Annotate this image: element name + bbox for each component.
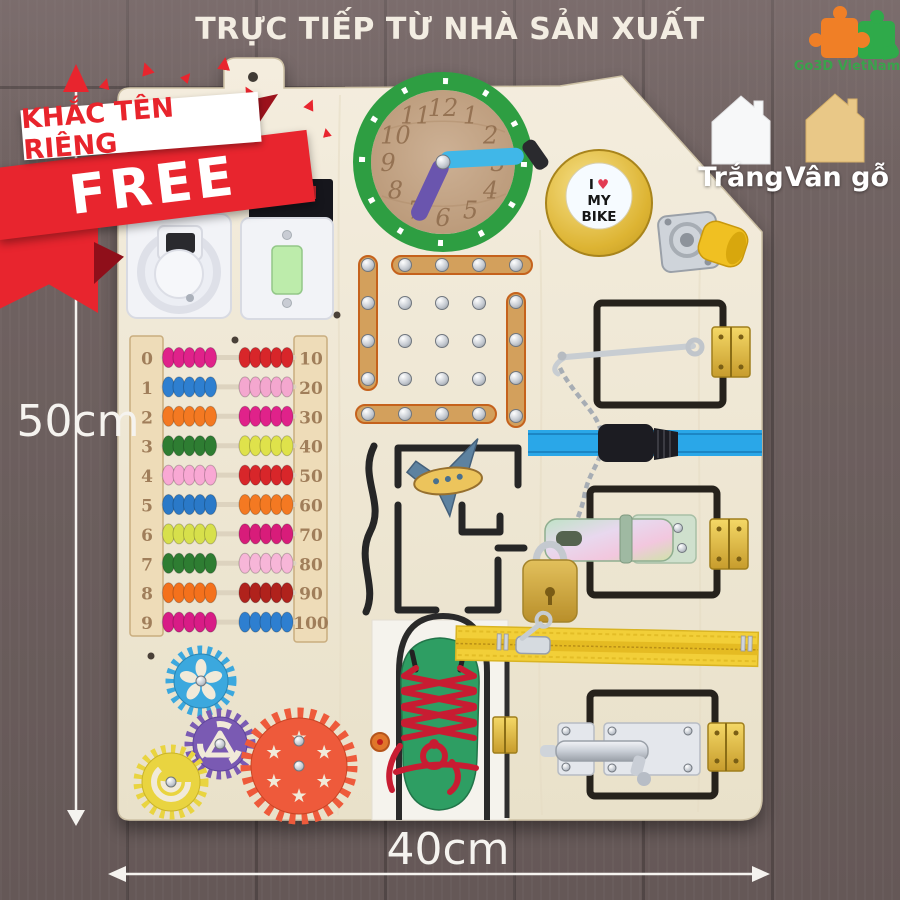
dimmer-knob[interactable] [155, 250, 203, 298]
swatch-houses [712, 94, 864, 164]
page-title: TRỰC TIẾP TỪ NHÀ SẢN XUẤT [0, 12, 900, 47]
abacus-bead [205, 553, 217, 573]
abacus-right-label: 100 [293, 614, 329, 634]
star-cutout: ★ [290, 785, 307, 807]
abacus-bead-group[interactable] [163, 553, 217, 573]
logo-text: Go3D VietNam [791, 59, 900, 74]
product-photo: 121234567891011 I♥ MY BIKE [0, 0, 900, 900]
abacus-bead [281, 612, 293, 632]
height-arrow-bottom [67, 810, 85, 826]
geoboard-pin [473, 335, 486, 348]
abacus-bead [281, 348, 293, 368]
geoboard-pin [510, 334, 523, 347]
abacus-left-label: 4 [141, 467, 153, 487]
abacus-left-label: 6 [141, 526, 153, 546]
height-arrow-top [63, 64, 89, 92]
abacus-right-label: 20 [299, 379, 323, 399]
abacus-bead-group[interactable] [163, 377, 217, 397]
geoboard-pin [473, 373, 486, 386]
swatch-label-wood: Vân gỗ [782, 162, 892, 193]
geoboard-pin [436, 259, 449, 272]
abacus-bead-group[interactable] [239, 612, 293, 632]
bell-text-line3: BIKE [582, 209, 617, 225]
abacus-bead [205, 495, 217, 515]
star-cutout: ★ [265, 771, 282, 793]
hasp-latch[interactable] [545, 515, 696, 563]
abacus-bead [281, 495, 293, 515]
clock-number: 2 [482, 122, 498, 150]
geoboard-pin [473, 297, 486, 310]
abacus-left-label: 8 [141, 585, 153, 605]
rocker-toggle[interactable] [272, 246, 302, 294]
buckle-clip[interactable] [598, 424, 654, 462]
abacus-left-label: 5 [141, 497, 153, 517]
clock-number: 9 [380, 149, 395, 177]
geoboard-pin [399, 335, 412, 348]
abacus-left-label: 1 [141, 379, 153, 399]
geoboard-pin [473, 259, 486, 272]
abacus-bead-group[interactable] [239, 436, 293, 456]
hinge-middle [710, 519, 748, 569]
abacus-bead [205, 436, 217, 456]
geoboard-pin [473, 408, 486, 421]
abacus-bead [281, 406, 293, 426]
abacus-right-label: 60 [299, 497, 323, 517]
geoboard-pin [362, 373, 375, 386]
abacus-left-label: 7 [141, 555, 153, 575]
white-house-icon[interactable] [712, 96, 770, 164]
bell-text-line2: MY [587, 193, 610, 209]
abacus-bead [205, 348, 217, 368]
geoboard-pin [362, 335, 375, 348]
clock: 121234567891011 [362, 81, 524, 243]
geoboard-pin [436, 373, 449, 386]
abacus-bead-group[interactable] [239, 377, 293, 397]
abacus-bead [205, 612, 217, 632]
abacus-left-label: 0 [141, 350, 153, 370]
geoboard-pin [436, 297, 449, 310]
geoboard-pin [362, 297, 375, 310]
hinge-bottom [708, 723, 744, 771]
star-cutout: ★ [316, 771, 333, 793]
hinge-door [493, 717, 517, 753]
abacus-bead-group[interactable] [163, 348, 217, 368]
abacus-bead-group[interactable] [163, 583, 217, 603]
geoboard-pin [399, 297, 412, 310]
abacus-bead-group[interactable] [239, 553, 293, 573]
geoboard-pin [399, 408, 412, 421]
clock-number: 4 [482, 177, 498, 205]
bell-text-line1: I♥ [589, 177, 609, 193]
abacus-bead-group[interactable] [163, 436, 217, 456]
clock-number: 8 [388, 177, 403, 205]
wood-house-icon[interactable] [806, 94, 864, 162]
geoboard-pin [399, 373, 412, 386]
geoboard-pin [510, 372, 523, 385]
dimmer-switch[interactable] [127, 214, 231, 318]
geoboard-pin [399, 259, 412, 272]
abacus-right-label: 90 [299, 585, 323, 605]
abacus-right-label: 80 [299, 555, 323, 575]
geoboard-pin [510, 410, 523, 423]
abacus-bead [281, 465, 293, 485]
abacus-bead [205, 583, 217, 603]
abacus-bead-group[interactable] [163, 465, 217, 485]
geoboard-pin [436, 408, 449, 421]
abacus-bead-group[interactable] [163, 524, 217, 544]
star-cutout: ★ [316, 742, 333, 764]
abacus-bead [205, 406, 217, 426]
clock-number: 11 [400, 101, 431, 129]
abacus-bead-group[interactable] [239, 348, 293, 368]
clock-number: 1 [463, 101, 478, 129]
geoboard-pin [510, 296, 523, 309]
clock-number: 6 [435, 204, 450, 232]
abacus-bead [281, 583, 293, 603]
abacus-bead-group[interactable] [239, 583, 293, 603]
width-arrow-right [752, 866, 770, 882]
geoboard-pin [510, 259, 523, 272]
abacus-bead [281, 553, 293, 573]
tab-hole [248, 72, 258, 82]
clock-center-screw [436, 155, 450, 169]
abacus-bead-group[interactable] [163, 495, 217, 515]
heart-icon: ♥ [597, 177, 609, 193]
abacus-right-label: 70 [299, 526, 323, 546]
abacus-left-label: 9 [141, 614, 153, 634]
abacus-bead [205, 465, 217, 485]
geoboard-pin [362, 408, 375, 421]
clock-number: 5 [463, 197, 478, 225]
abacus-bead-group[interactable] [239, 406, 293, 426]
height-dimension-label: 50cm [16, 396, 140, 447]
engrave-banner: KHẮC TÊN RIÊNG [20, 92, 261, 161]
abacus-bead-group[interactable] [239, 465, 293, 485]
abacus-left-label: 3 [141, 438, 153, 458]
abacus-bead [281, 436, 293, 456]
clock-number: 12 [428, 94, 459, 122]
abacus-bead-group[interactable] [163, 406, 217, 426]
rocker-switch[interactable] [241, 218, 333, 319]
abacus-bead [281, 377, 293, 397]
abacus-right-label: 50 [299, 467, 323, 487]
abacus-left-label: 2 [141, 408, 153, 428]
abacus-right-label: 40 [299, 438, 323, 458]
abacus-bead [205, 377, 217, 397]
abacus-right-label: 10 [299, 350, 323, 370]
abacus-bead [205, 524, 217, 544]
width-dimension-label: 40cm [378, 824, 518, 875]
geoboard-pin [362, 259, 375, 272]
abacus-right-label: 30 [299, 408, 323, 428]
geoboard-pin [436, 335, 449, 348]
width-arrow-left [108, 866, 126, 882]
abacus-bead-group[interactable] [239, 495, 293, 515]
swatch-label-white: Trắng [686, 162, 796, 193]
hinge-top [712, 327, 750, 377]
abacus-bead-group[interactable] [239, 524, 293, 544]
star-cutout: ★ [265, 742, 282, 764]
abacus-bead [281, 524, 293, 544]
abacus-bead-group[interactable] [163, 612, 217, 632]
